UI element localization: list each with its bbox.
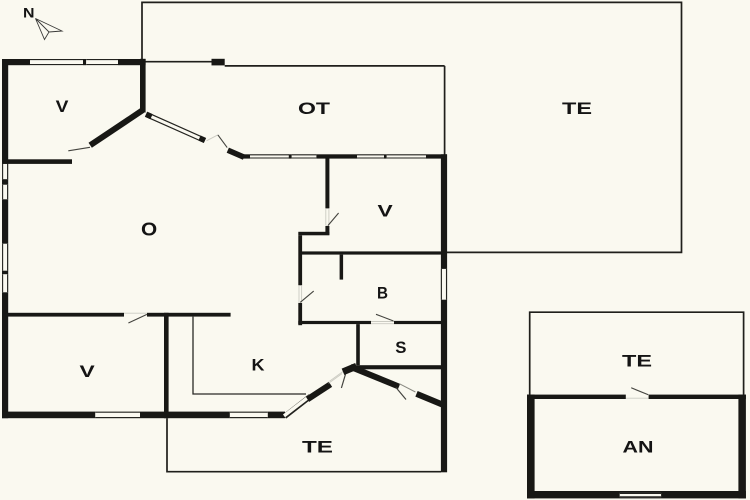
svg-text:K: K (252, 356, 266, 375)
svg-text:N: N (23, 5, 35, 21)
svg-text:V: V (378, 202, 394, 221)
svg-text:TE: TE (622, 352, 652, 371)
svg-text:V: V (80, 362, 96, 381)
svg-text:TE: TE (562, 99, 592, 118)
svg-text:S: S (395, 338, 406, 357)
svg-text:O: O (141, 219, 157, 239)
svg-text:AN: AN (623, 438, 654, 457)
svg-text:B: B (377, 283, 388, 302)
svg-text:TE: TE (302, 437, 333, 456)
svg-text:V: V (56, 97, 70, 116)
svg-text:OT: OT (298, 99, 331, 118)
